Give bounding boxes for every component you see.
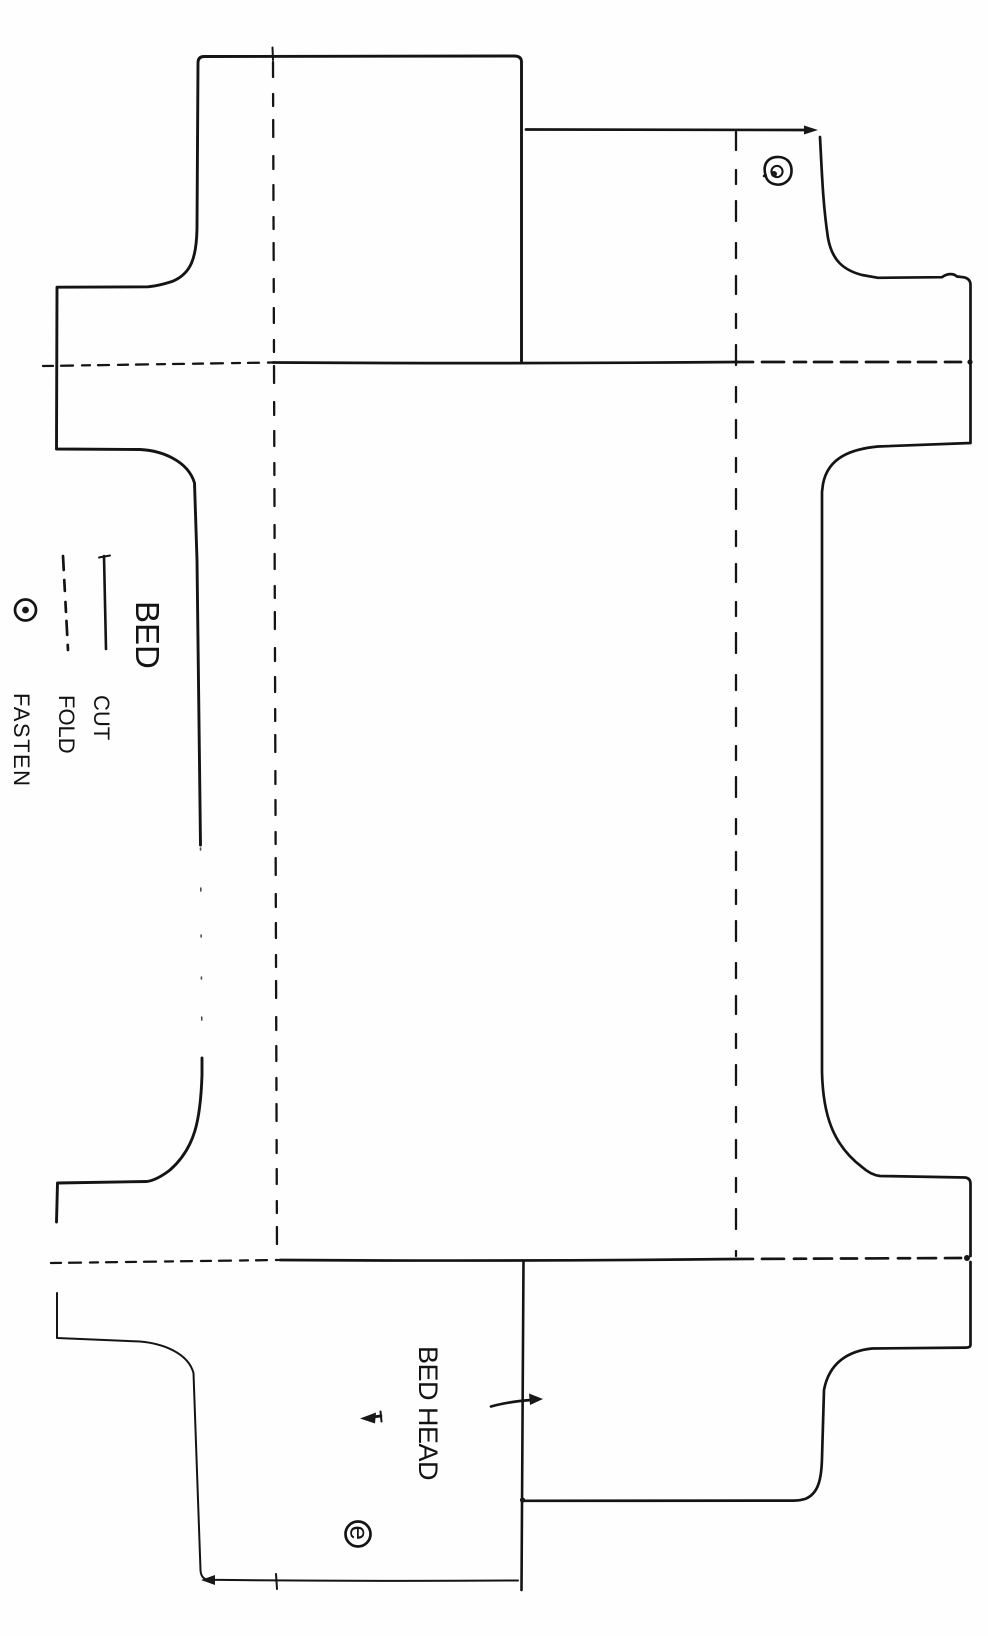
svg-text:e: e: [345, 1526, 375, 1540]
svg-text:FASTEN: FASTEN: [9, 693, 34, 788]
svg-text:FOLD: FOLD: [54, 695, 79, 754]
svg-text:BED HEAD: BED HEAD: [413, 1346, 443, 1480]
svg-text:CUT: CUT: [89, 695, 114, 740]
svg-text:BED: BED: [129, 601, 166, 669]
